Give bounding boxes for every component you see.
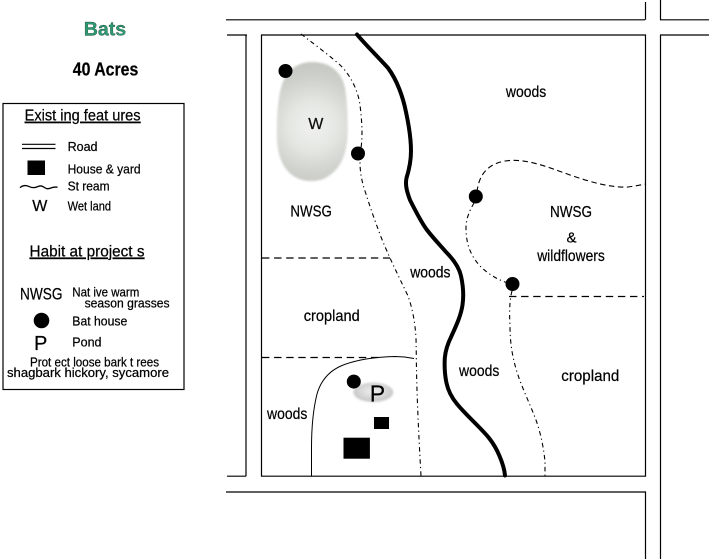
svg-text:Wet land: Wet land	[68, 200, 112, 214]
svg-text:House & yard: House & yard	[68, 163, 141, 177]
svg-text:wildflowers: wildflowers	[536, 248, 604, 265]
svg-text:NWSG: NWSG	[550, 204, 592, 221]
svg-text:NWSG: NWSG	[290, 204, 331, 221]
svg-text:Road: Road	[68, 140, 98, 154]
svg-text:P: P	[34, 333, 47, 355]
svg-text:woods: woods	[458, 363, 499, 380]
svg-text:Habit at project s: Habit at project s	[30, 244, 145, 261]
svg-text:&: &	[567, 230, 577, 247]
svg-text:NWSG: NWSG	[20, 285, 63, 303]
svg-text:40 Acres: 40 Acres	[73, 58, 139, 79]
svg-text:woods: woods	[266, 406, 307, 423]
svg-text:cropland: cropland	[304, 308, 360, 325]
svg-text:shagbark hickory, sycamore: shagbark hickory, sycamore	[7, 366, 169, 380]
svg-text:cropland: cropland	[561, 368, 619, 385]
svg-text:W: W	[308, 116, 324, 133]
svg-text:Exist ing feat ures: Exist ing feat ures	[25, 108, 141, 125]
svg-text:St ream: St ream	[68, 180, 110, 194]
svg-text:season grasses: season grasses	[85, 297, 170, 311]
svg-text:woods: woods	[505, 84, 546, 101]
svg-text:W: W	[32, 198, 48, 215]
svg-text:Bats: Bats	[84, 18, 127, 40]
svg-text:P: P	[370, 381, 385, 407]
svg-text:Bat house: Bat house	[72, 315, 127, 329]
svg-text:woods: woods	[409, 264, 450, 281]
svg-text:Pond: Pond	[72, 336, 101, 350]
